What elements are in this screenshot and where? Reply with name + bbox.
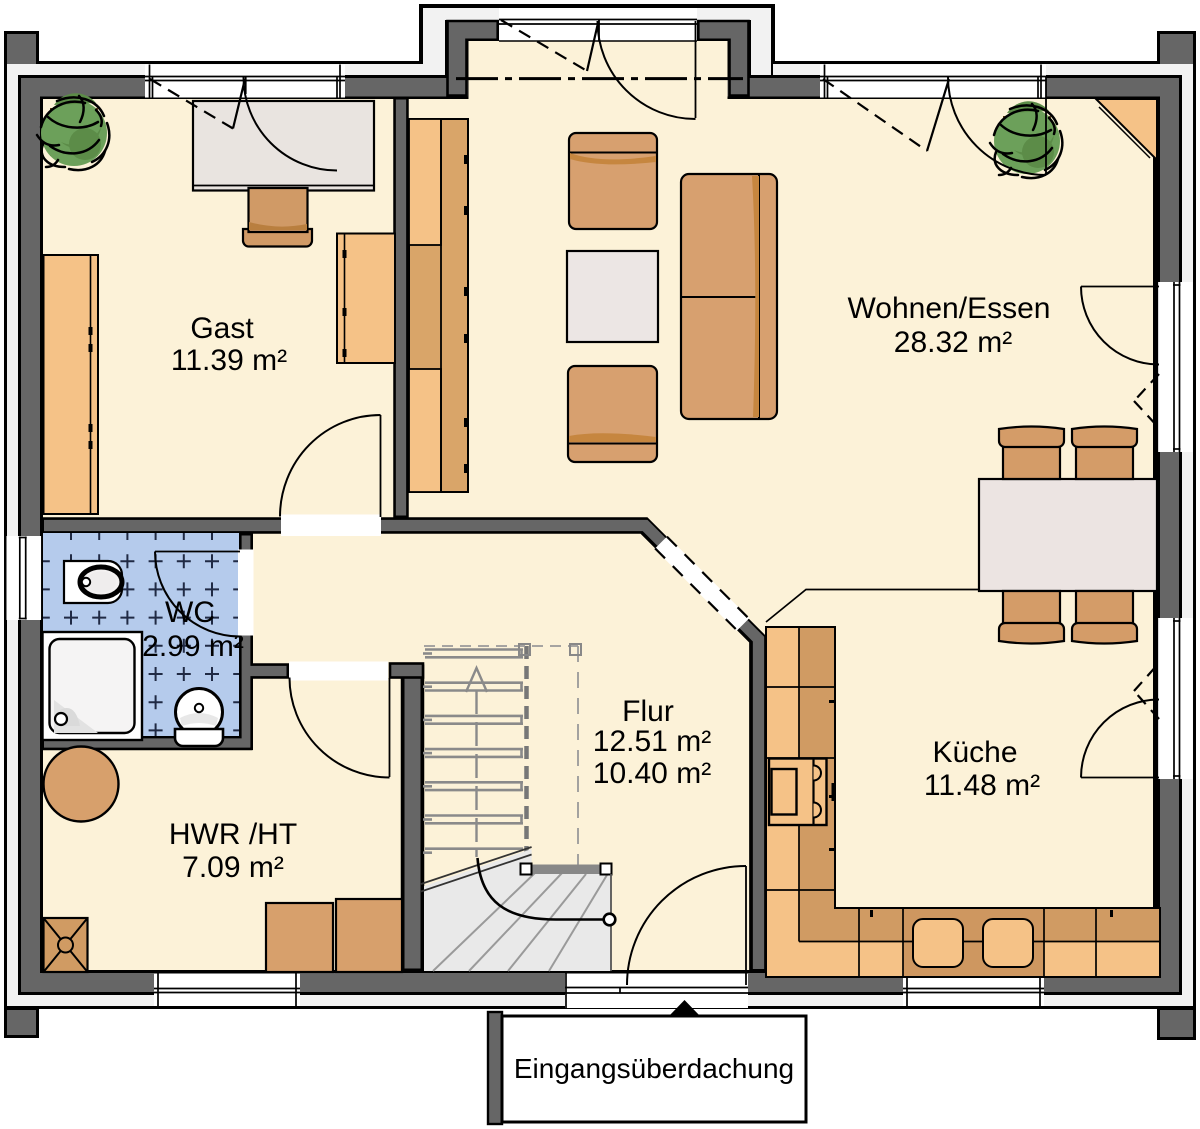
svg-text:Wohnen/Essen: Wohnen/Essen bbox=[848, 292, 1051, 325]
svg-text:12.51 m²: 12.51 m² bbox=[593, 725, 711, 758]
svg-text:28.32 m²: 28.32 m² bbox=[894, 326, 1012, 359]
svg-text:Küche: Küche bbox=[932, 736, 1017, 769]
svg-text:11.48 m²: 11.48 m² bbox=[924, 769, 1040, 802]
svg-text:Eingangsüberdachung: Eingangsüberdachung bbox=[514, 1053, 794, 1084]
svg-text:2.99 m²: 2.99 m² bbox=[142, 630, 244, 663]
svg-text:10.40 m²: 10.40 m² bbox=[593, 757, 711, 790]
svg-text:Flur: Flur bbox=[622, 695, 674, 728]
svg-text:HWR /HT: HWR /HT bbox=[169, 818, 297, 851]
svg-text:11.39 m²: 11.39 m² bbox=[171, 344, 287, 377]
svg-text:7.09 m²: 7.09 m² bbox=[182, 851, 284, 884]
svg-text:Gast: Gast bbox=[190, 312, 254, 345]
svg-text:WC: WC bbox=[165, 596, 215, 629]
